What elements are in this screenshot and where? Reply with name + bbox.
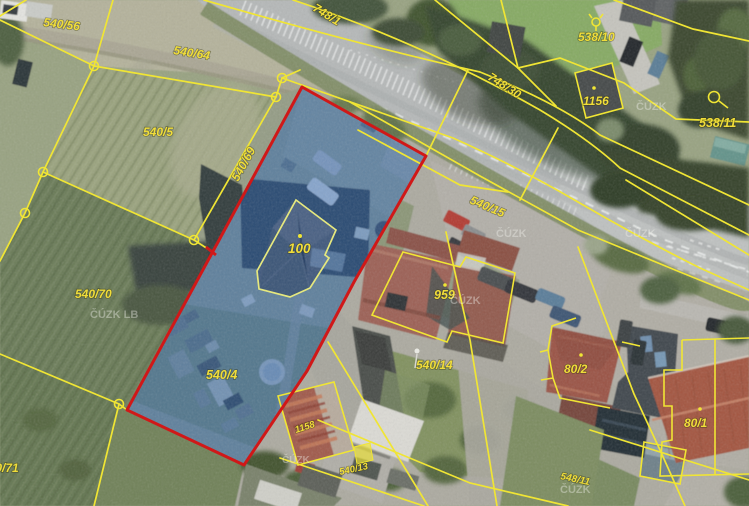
svg-text:540/71: 540/71	[0, 461, 19, 475]
svg-text:ČÚZK: ČÚZK	[636, 100, 667, 113]
svg-text:538/10: 538/10	[578, 30, 615, 44]
svg-text:540/70: 540/70	[75, 287, 112, 301]
svg-text:ČÚZK: ČÚZK	[282, 453, 311, 466]
svg-text:80/2: 80/2	[564, 362, 588, 376]
svg-text:ČÚZK: ČÚZK	[496, 227, 527, 240]
svg-text:100: 100	[288, 241, 311, 256]
svg-text:538/11: 538/11	[699, 116, 736, 130]
svg-text:540/5: 540/5	[143, 125, 173, 139]
svg-text:ČÚZK LB: ČÚZK LB	[90, 308, 138, 321]
svg-text:540/14: 540/14	[416, 358, 453, 372]
svg-text:80/1: 80/1	[684, 416, 708, 430]
svg-text:540/4: 540/4	[206, 368, 237, 382]
svg-text:ČÚZK: ČÚZK	[450, 294, 481, 307]
svg-text:ČÚZK: ČÚZK	[560, 483, 591, 496]
svg-text:1156: 1156	[583, 94, 609, 108]
svg-text:ČÚZK: ČÚZK	[625, 227, 656, 240]
